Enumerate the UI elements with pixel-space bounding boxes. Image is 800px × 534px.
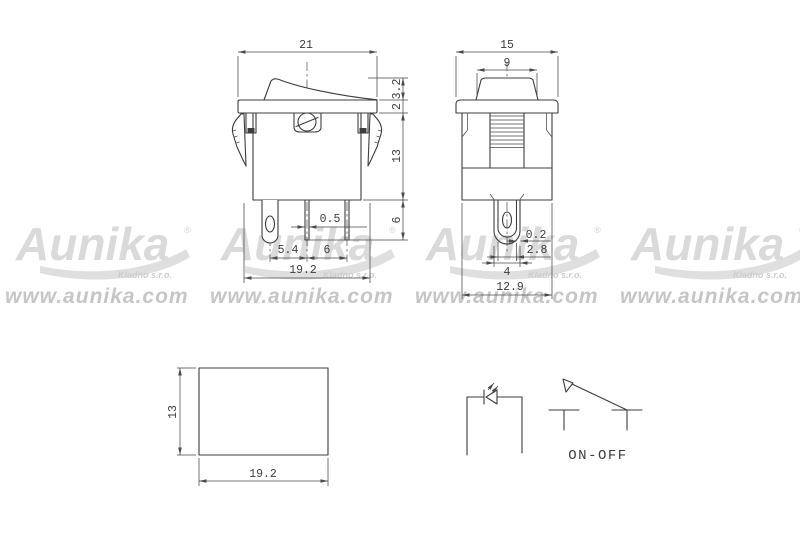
- watermark-registered-mark: ®: [184, 225, 191, 235]
- rocker-actuator-profile: [264, 79, 377, 100]
- dim-side-slot-width: 4: [504, 266, 511, 279]
- dim-side-overall-width: 15: [500, 39, 514, 52]
- dim-front-terminal-length: 6: [391, 216, 404, 223]
- watermark-tile: [620, 218, 800, 308]
- technical-drawing-page: Aunika ® Kladno s.r.o. www.aunika.com: [0, 0, 800, 534]
- led-emission-arrows: [488, 383, 494, 390]
- mounting-flange: [238, 100, 377, 113]
- watermark-tile: Aunika ® Kladno s.r.o. www.aunika.com: [5, 218, 191, 308]
- terminal-left: [262, 200, 278, 243]
- watermark-brand: Aunika: [15, 218, 169, 270]
- on-off-switch-symbol: ON-OFF: [549, 379, 642, 464]
- watermark-url: www.aunika.com: [5, 285, 189, 308]
- on-off-label: ON-OFF: [568, 448, 627, 464]
- dim-front-overall-width: 21: [299, 39, 313, 52]
- dim-cutout-height: 13: [167, 405, 180, 419]
- side-flange: [456, 100, 558, 113]
- dim-front-flange-thickness: 2: [391, 103, 404, 110]
- switch-lever: [572, 384, 627, 410]
- dim-front-rocker-height: 3.2: [391, 79, 404, 100]
- switch-lever-tip: [563, 379, 573, 392]
- watermark-tile: [210, 218, 396, 308]
- watermark-subtitle: Kladno s.r.o.: [118, 270, 172, 280]
- dim-cutout-width: 19.2: [249, 468, 277, 481]
- switch-body: [253, 113, 361, 200]
- led-wires: [467, 397, 522, 455]
- circuit-symbols: ON-OFF: [467, 379, 642, 464]
- dim-side-terminal-width: 2.8: [527, 244, 548, 257]
- panel-cutout-view: 13 19.2: [167, 368, 328, 486]
- led-triangle: [486, 390, 497, 404]
- cutout-rectangle: [199, 368, 328, 455]
- dim-front-pin-pitch-right: 6: [324, 244, 331, 257]
- side-rocker: [476, 78, 538, 100]
- dim-front-pin-pitch-left: 5.4: [278, 244, 299, 257]
- watermark-layer: Aunika ® Kladno s.r.o. www.aunika.com: [5, 218, 800, 308]
- side-body: [462, 113, 552, 200]
- dim-front-body-length: 19.2: [289, 264, 317, 277]
- dim-front-terminal-thickness: 0.5: [320, 213, 341, 226]
- dim-side-rocker-width: 9: [504, 57, 511, 70]
- dim-side-sheet-thickness: 0.2: [526, 229, 547, 242]
- dim-side-body-width: 12.9: [496, 281, 524, 294]
- dim-front-body-height: 13: [391, 149, 404, 163]
- switch-terminals: [549, 410, 642, 430]
- led-symbol: [467, 383, 522, 455]
